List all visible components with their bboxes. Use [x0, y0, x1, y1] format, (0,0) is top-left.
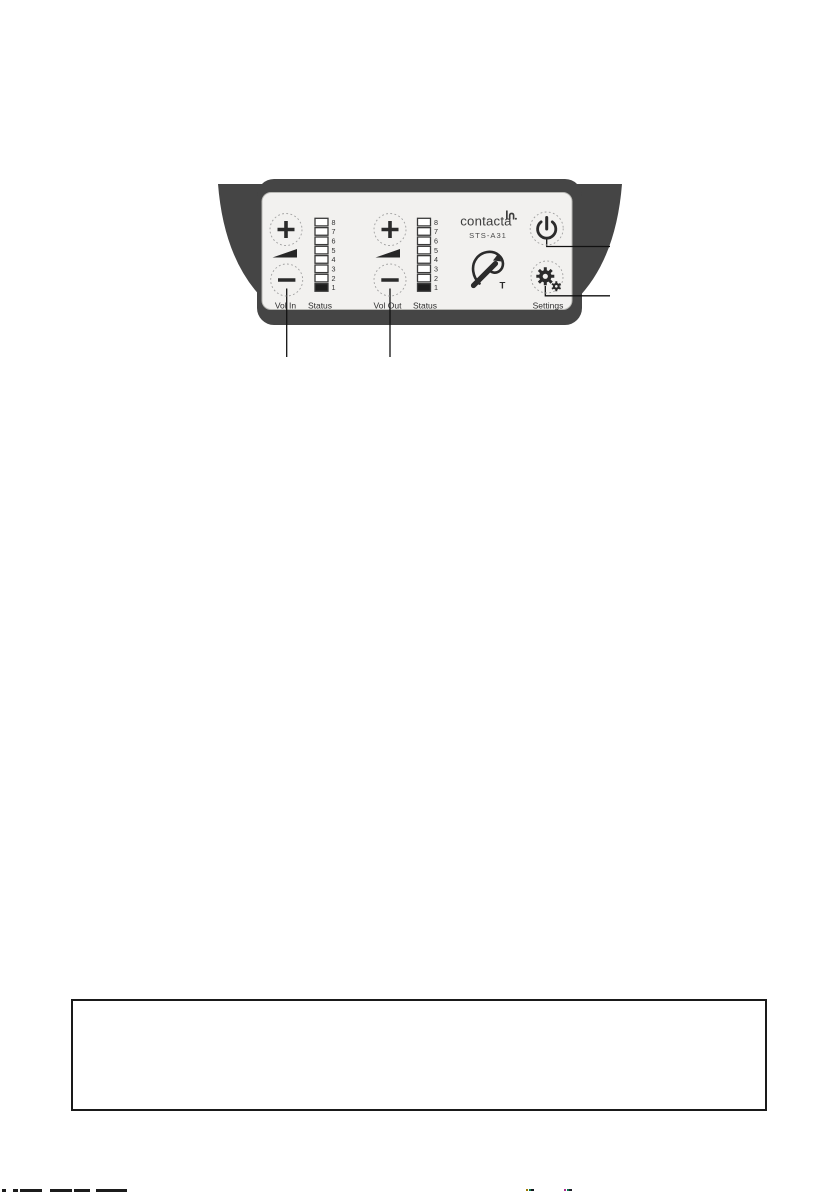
led-number: 8	[434, 218, 438, 227]
footer-fragment	[20, 1189, 43, 1192]
led-box	[418, 246, 431, 254]
led-number: 8	[332, 218, 336, 227]
led-number: 6	[332, 237, 336, 246]
t-coil-letter: T	[500, 281, 506, 292]
led-number: 5	[434, 246, 438, 255]
led-box-lit	[418, 284, 431, 292]
footer-fragment	[13, 1189, 18, 1192]
led-number: 3	[434, 265, 438, 274]
led-box	[315, 218, 328, 226]
vol-out-label: Vol Out	[374, 301, 403, 311]
led-number: 7	[434, 227, 438, 236]
led-box	[315, 246, 328, 254]
page: { "device": { "brand": "contacta", "mode…	[0, 0, 840, 1192]
led-number: 2	[332, 274, 336, 283]
brand-name: contacta	[460, 214, 512, 229]
footer-fragment	[74, 1189, 90, 1192]
led-box-lit	[315, 284, 328, 292]
status-out-label: Status	[413, 301, 437, 311]
model-label: STS-A31	[469, 231, 507, 240]
notes-box	[71, 999, 767, 1111]
led-box	[315, 265, 328, 273]
led-number: 7	[332, 227, 336, 236]
led-number: 6	[434, 237, 438, 246]
device-right-wing	[576, 184, 622, 300]
led-box	[418, 237, 431, 245]
footer-color-fragment	[569, 1189, 571, 1191]
led-box	[315, 256, 328, 264]
led-number: 1	[332, 283, 336, 292]
led-box	[315, 237, 328, 245]
led-box	[418, 228, 431, 236]
led-box	[418, 256, 431, 264]
led-box	[315, 274, 328, 282]
footer-fragment	[96, 1189, 127, 1192]
settings-label: Settings	[533, 301, 564, 311]
led-number: 5	[332, 246, 336, 255]
status-in-label: Status	[308, 301, 332, 311]
led-box	[315, 228, 328, 236]
led-number: 3	[332, 265, 336, 274]
vol-in-label: Vol In	[275, 301, 297, 311]
led-box	[418, 218, 431, 226]
led-number: 2	[434, 274, 438, 283]
device-figure: Vol In 8 7 6 5 4 3 2 1 Status Vol Out	[200, 165, 640, 365]
device-illustration: Vol In 8 7 6 5 4 3 2 1 Status Vol Out	[200, 165, 640, 365]
footer-color-fragment	[531, 1189, 533, 1191]
led-number: 4	[332, 255, 336, 264]
led-box	[418, 265, 431, 273]
footer-fragment	[50, 1189, 72, 1192]
led-box	[418, 274, 431, 282]
footer-fragment	[2, 1189, 6, 1192]
led-number: 1	[434, 283, 438, 292]
led-number: 4	[434, 255, 438, 264]
